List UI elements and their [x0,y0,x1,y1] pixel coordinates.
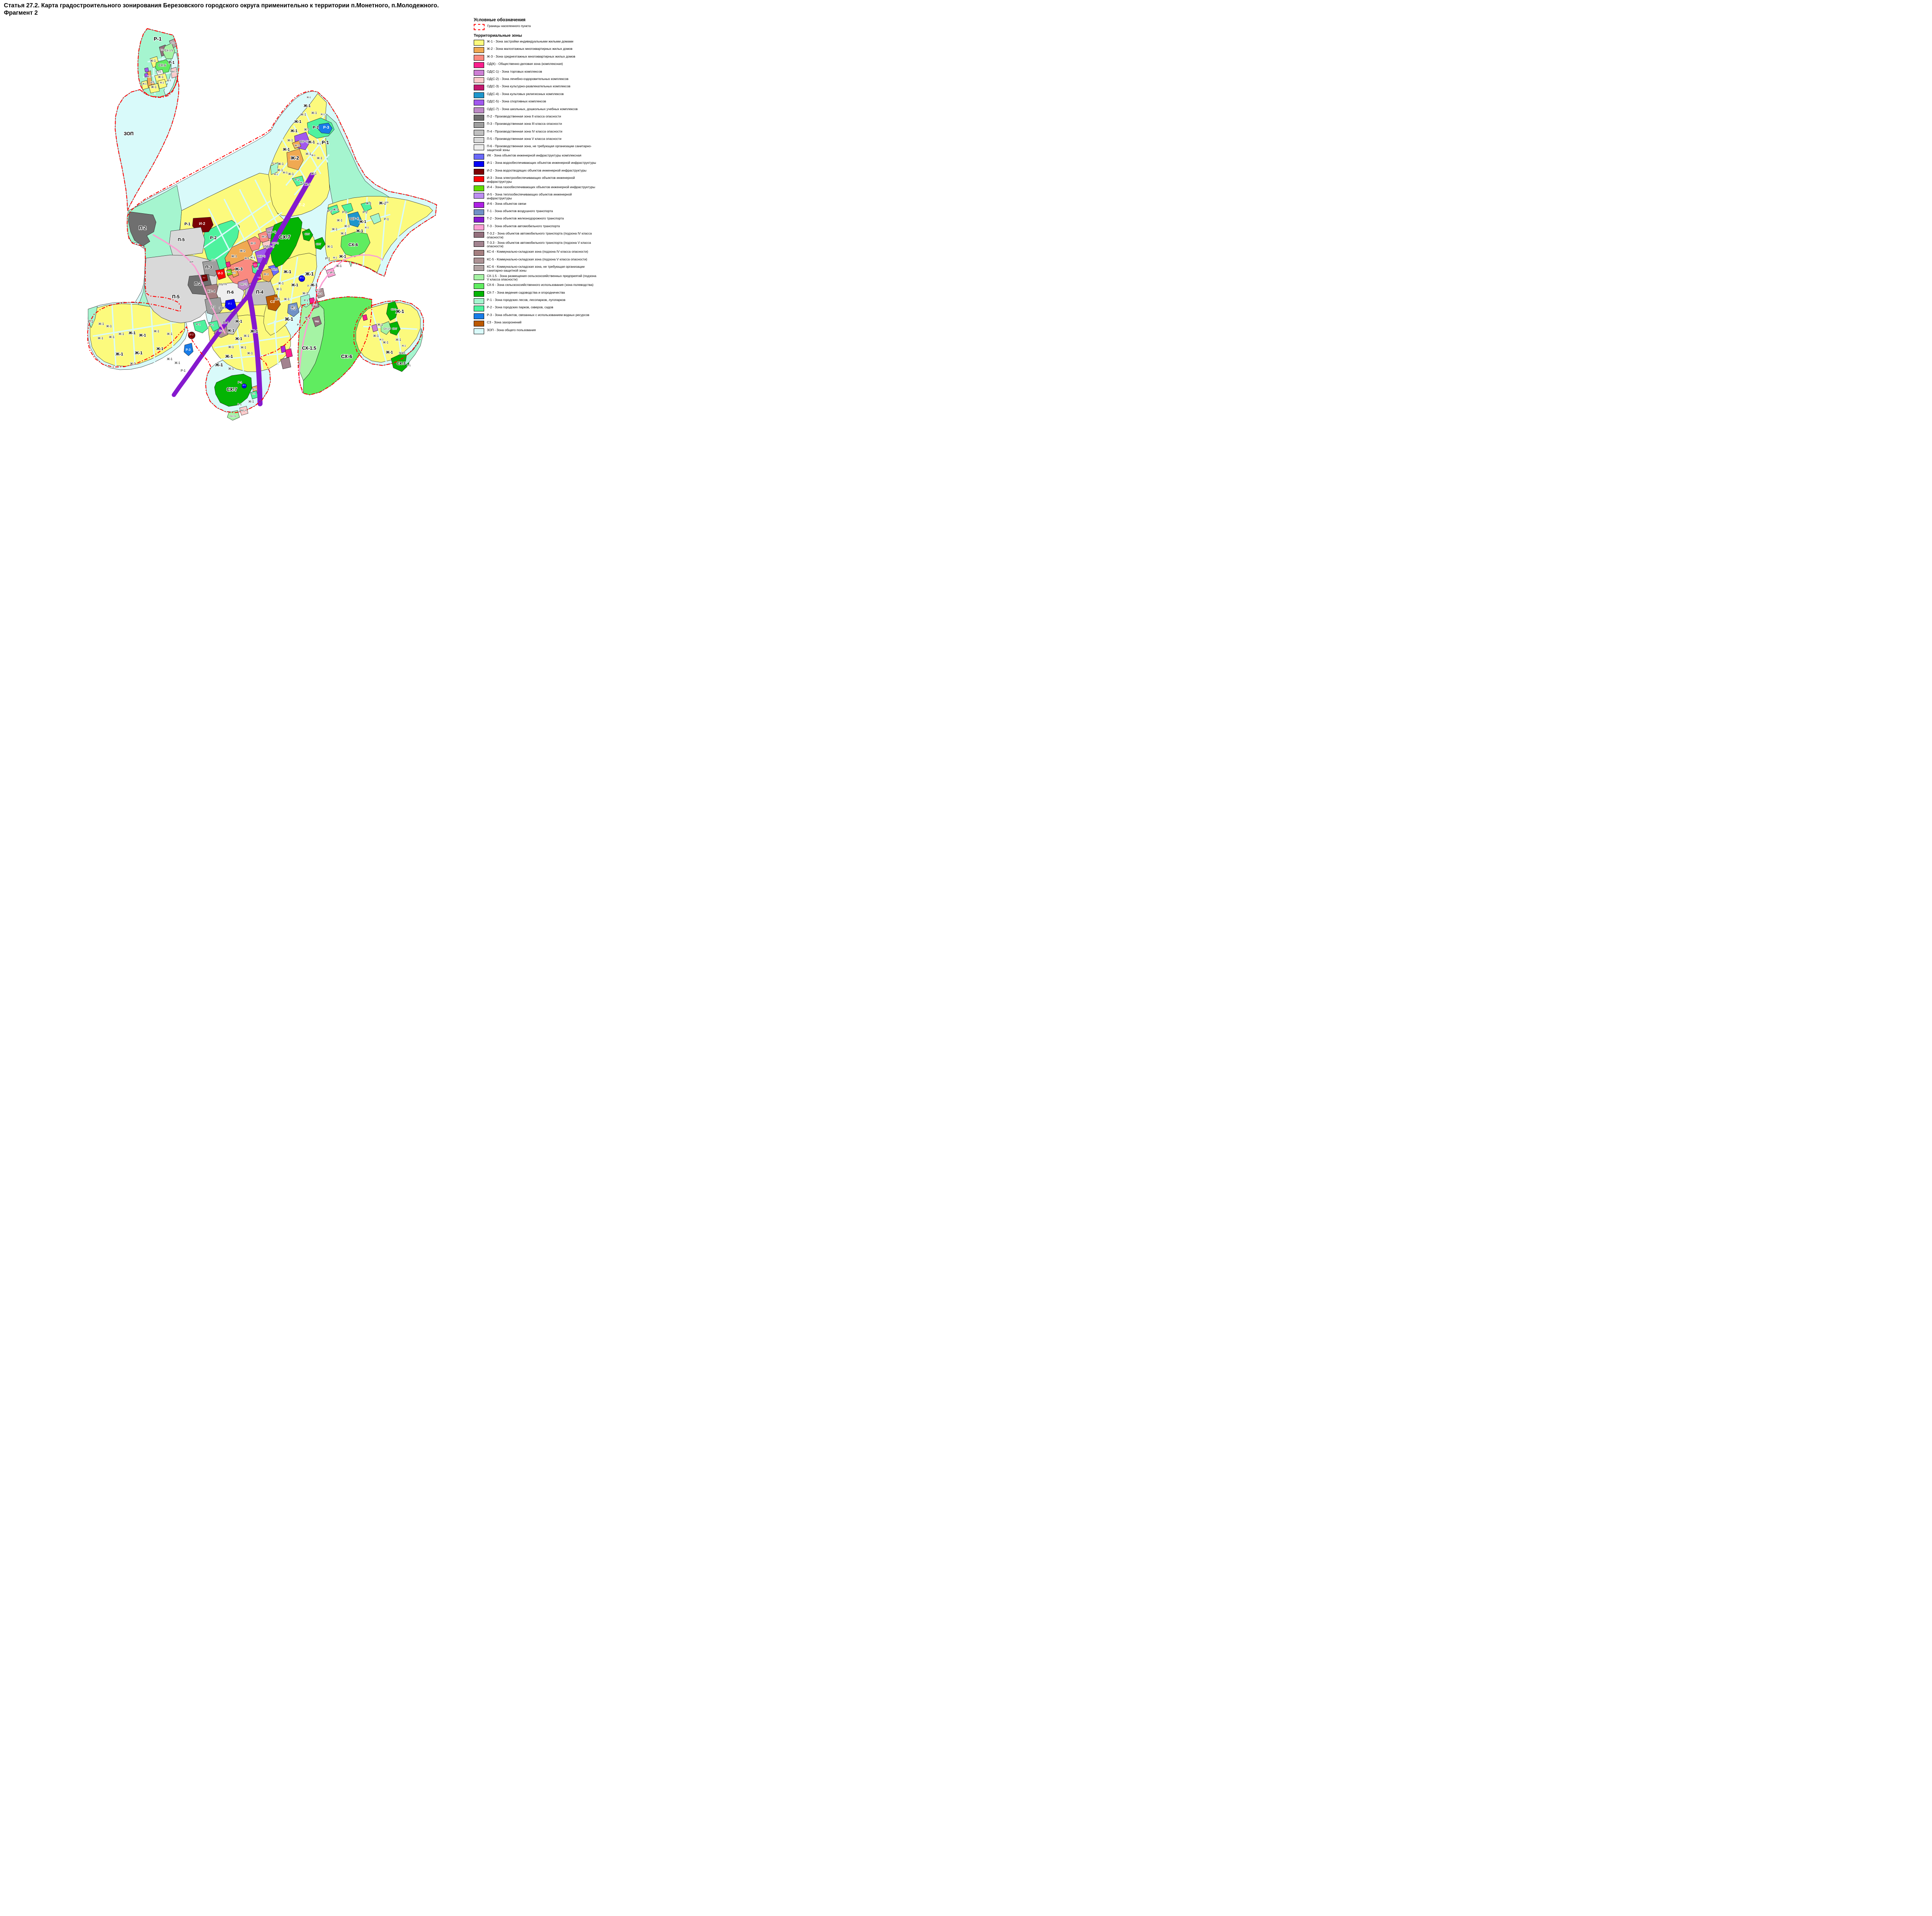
map-label-Р-2: Р-2 [255,268,259,270]
map-label-Р-1: Р-1 [181,369,186,372]
map-label-Ж-2: Ж-2 [253,388,256,391]
map-label-Р-2: Р-2 [328,209,333,213]
legend-label-П-6: П-6 - Производственная зона, не требующа… [487,144,597,152]
map-label-ОД(К): ОД(К) [257,276,262,278]
map-label-Ж-1: Ж-1 [284,298,290,301]
legend-item-П-4: П-4 - Производственная зона IV класса оп… [474,129,597,136]
map-label-Ж-1: Ж-1 [106,325,112,328]
legend-item-И-6: И-6 - Зона объектов связи [474,202,597,208]
map-label-Р-1: Р-1 [331,272,335,274]
map-label-Ж-1: Ж-1 [306,152,311,156]
map-label-СХ-6: СХ-6 [158,63,166,67]
legend-label-П-3: П-3 - Производственная зона III класса о… [487,122,562,126]
map-label-Ж-1: Ж-1 [215,363,223,367]
map-label-Ж-1: Ж-1 [290,129,298,133]
legend-swatch-Р-2 [474,306,484,311]
map-label-Ж-1: Ж-1 [339,255,346,259]
legend-label-КС-5: КС-5 - Коммунально-складская зона (подзо… [487,257,587,262]
legend-item-И-3: И-3 - Зона электрообеспечивающих объекто… [474,176,597,184]
map-label-Ж-1: Ж-1 [235,337,242,341]
legend-swatch-СЗ [474,321,484,326]
map-label-И-1: И-1 [228,303,232,305]
parcel-П-5 [169,227,205,257]
map-label-Ж-1: Ж-1 [378,323,383,326]
map-label-Ж-2: Ж-2 [150,82,154,84]
map-label-Ж-1: Ж-1 [288,172,294,176]
map-label-Ж-1: Ж-1 [359,220,366,224]
legend-swatch-ОД(С-1) [474,70,484,76]
legend-label-И-4: И-4 - Зона газообеспечивающих объектов и… [487,185,595,189]
map-label-Ж-1: Ж-1 [99,322,104,326]
map-label-СХ-1.5: СХ-1.5 [230,415,236,418]
legend-swatch-Т-3 [474,224,484,230]
map-label-Р-2: Р-2 [196,323,201,326]
legend-item-КС-6: КС-6 - Коммунально-складская зона, не тр… [474,265,597,272]
legend-label-Р-3: Р-3 - Зона объектов, связанных с использ… [487,313,589,317]
map-label-Ж-3: Ж-3 [235,267,243,272]
legend-label-Р-2: Р-2 - Зона городских парков, скверов, са… [487,305,553,309]
map-label-П-2: П-2 [194,282,201,286]
map-label-Ж-1: Ж-1 [396,338,401,342]
map-label-Ж-1: Ж-1 [231,255,237,258]
map-label-Ж-1: Ж-1 [337,219,343,222]
map-label-Р-2: Р-2 [342,211,347,214]
map-label-Ж-1: Ж-1 [333,257,338,259]
map-label-СХ-7: СХ-7 [316,243,321,246]
legend-swatch-П-5 [474,137,484,143]
legend-label-И-2: И-2 - Зона водоотводящих объектов инжене… [487,168,587,173]
map-label-Р-1: Р-1 [304,299,308,302]
legend-label-ОД(С-3): ОД(С-3) - Зона культурно-развлекательных… [487,84,570,88]
legend-label-ОД(С-1): ОД(С-1) - Зона торговых комплексов [487,70,542,74]
map-label-Ж-1: Ж-1 [227,329,235,333]
map-label-Ж-1: Ж-1 [303,104,311,108]
legend-label-ОД(С-5): ОД(С-5) - Зона спортивных комплексов [487,99,546,104]
legend-swatch-И-5 [474,193,484,199]
legend-label-СХ-1.5: СХ-1.5 - Зона размещения сельскохозяйств… [487,274,597,282]
map-label-П-2: П-2 [139,225,146,231]
legend-label-Ж-3: Ж-3 - Зона среднеэтажных многоквартирных… [487,54,575,59]
legend-item-Р-1: Р-1 - Зона городских лесов, лесопарков, … [474,298,597,304]
map-label-Ж-3: Ж-3 [251,242,256,245]
legend-swatch-И-1 [474,161,484,167]
map-label-Т-3.3: Т-3.3 [313,304,317,306]
parcel-ОД(С-5) [145,68,149,72]
map-label-Р-2: Р-2 [297,324,301,326]
map-label-СХ-7: СХ-7 [227,387,237,392]
map-label-Ж-1: Ж-1 [282,148,290,152]
legend-items: Ж-1 - Зона застройки индивидуальными жил… [474,39,597,334]
map-label-КС-5: КС-5 [212,259,216,262]
legend-item-СХ-1.5: СХ-1.5 - Зона размещения сельскохозяйств… [474,274,597,282]
map-label-СЗ: СЗ [270,300,275,304]
map-label-Ж-1: Ж-1 [248,400,254,403]
map-label-П-4: П-4 [223,321,228,325]
legend-header: Условные обозначения [474,18,597,22]
parcel-ОД(К) [285,349,293,358]
legend-swatch-Ж-3 [474,55,484,61]
map-label-Ж-2: Ж-2 [290,155,299,161]
legend-item-СХ-6: СХ-6 - Зона сельскохозяйственного исполь… [474,283,597,289]
legend-item-ЗОП: ЗОП - Зона общего пользования [474,328,597,334]
map-label-Р-2: Р-2 [252,393,255,395]
map-label-Ж-1: Ж-1 [284,316,293,322]
legend-label-Т-3: Т-3 - Зона объектов автомобильного транс… [487,224,560,228]
legend-item-Т-3: Т-3 - Зона объектов автомобильного транс… [474,224,597,230]
map-label-Ж-1: Ж-1 [235,320,242,324]
map-label-СХ-6: СХ-6 [349,243,358,247]
legend-swatch-Т-3.3 [474,241,484,247]
legend-item-КС-4: КС-4 - Коммунально-складская зона (подзо… [474,250,597,256]
map-label-Ж-1: Ж-1 [332,228,338,231]
legend-swatch-ОД(С-2) [474,77,484,83]
map-label-Ж-1: Ж-1 [303,292,308,295]
legend-swatch-ОД(С-7) [474,107,484,113]
legend-item-П-5: П-5 - Производственная зона V класса опа… [474,137,597,143]
map-label-Т-2: Т-2 [299,203,305,207]
map-label-СХ-7: СХ-7 [279,234,290,240]
legend-label-Ж-2: Ж-2 - Зона малоэтажных многоквартирных ж… [487,47,572,51]
map-label-И-1: И-1 [300,277,304,279]
map-label-СХ-7: СХ-7 [392,328,397,330]
map-label-Ж-1: Ж-1 [150,59,156,63]
map-label-Р-1: Р-1 [238,403,242,406]
map-label-Ж-1: Ж-1 [344,224,350,228]
legend-swatch-ОД(С-4) [474,92,484,98]
map-label-П-5: П-5 [178,238,185,242]
legend-label-И-6: И-6 - Зона объектов связи [487,202,526,206]
legend-swatch-Р-1 [474,298,484,304]
map-label-Р-1: Р-1 [238,381,242,384]
map-label-СХ-7: СХ-7 [391,309,396,311]
legend-label-ОД(С-4): ОД(С-4) - Зона культовых религиозных ком… [487,92,564,96]
legend-item-ОД(С-4): ОД(С-4) - Зона культовых религиозных ком… [474,92,597,98]
legend-swatch-КС-5 [474,258,484,264]
map-label-КС-5: КС-5 [316,289,320,291]
map-label-Ж-1: Ж-1 [402,345,406,347]
map-label-Р-2: Р-2 [295,178,300,182]
legend-item-И-5: И-5 - Зона теплообеспечивающих объектов … [474,192,597,200]
map-label-Ж-1: Ж-1 [278,282,284,285]
map-label-Ж-1: Ж-1 [167,80,172,82]
legend-swatch-Т-3.2 [474,232,484,238]
legend-item-ОД(С-2): ОД(С-2) - Зона лечебно-оздоровительных к… [474,77,597,83]
legend-swatch-П-2 [474,115,484,121]
map-label-Р-2: Р-2 [363,211,368,214]
map-label-Ж-1: Ж-1 [327,245,333,248]
map-label-П-3: П-3 [211,305,216,309]
map-label-Ж-1: Ж-1 [304,128,310,131]
map-label-КС-5: КС-5 [318,293,322,295]
map-label-И-1: И-1 [243,384,246,387]
legend-swatch-ИК [474,154,484,160]
map-label-Ж-1: Ж-1 [278,162,284,166]
legend-label-Т-3.3: Т-3.3 - Зона объектов автомобильного тра… [487,241,597,248]
map-label-И-2: И-2 [190,334,194,336]
legend-label-СЗ: СЗ - Зона захоронений [487,320,522,325]
legend-swatch-КС-4 [474,250,484,256]
legend-label-П-4: П-4 - Производственная зона IV класса оп… [487,129,562,134]
map-label-Ж-1: Ж-1 [247,352,253,355]
map-label-КС-4: КС-4 [207,289,215,293]
map-label-Ж-1: Ж-1 [225,354,233,359]
map-label-Р-2: Р-2 [210,236,216,240]
map-label-Ж-1: Ж-1 [305,183,311,186]
map-label-Ж-1: Ж-1 [130,362,136,366]
map-label-Ж-1: Ж-1 [283,172,288,174]
map-label-Ж-1: Ж-1 [228,367,234,371]
legend-label-П-2: П-2 - Производственная зона II класса оп… [487,114,561,119]
map-label-Ж-3: Ж-3 [262,236,267,238]
map-label-ОД(С-5): ОД(С-5) [299,141,308,143]
map-label-Ж-1: Ж-1 [276,287,282,291]
map-label-И-3: И-3 [218,272,223,275]
map-label-Ж-1: Ж-1 [158,75,164,79]
map-label-Р-3: Р-3 [186,348,191,352]
map-label-Ж-1: Ж-1 [156,347,163,351]
map-label-Ж-1: Ж-1 [294,120,301,124]
legend-label-П-5: П-5 - Производственная зона V класса опа… [487,137,561,141]
boundary-label: Границы населенного пункта [487,24,531,28]
map-label-ОД(С-7): ОД(С-7) [240,283,247,286]
map-label-Ж-1: Ж-1 [311,172,317,175]
map-label-Ж-1: Ж-1 [291,306,297,309]
map-label-Ж-1: Ж-1 [308,140,315,145]
map-label-П-5: П-5 [274,269,277,271]
map-label-Ж-2: Ж-2 [295,145,300,147]
map-label-ОД(С-7): ОД(С-7) [266,231,276,234]
map-label-Ж-1: Ж-1 [317,143,321,145]
map-label-Ж-2: Ж-2 [264,273,269,276]
legend-item-Т-3.2: Т-3.2 - Зона объектов автомобильного тра… [474,231,597,239]
map-label-СХ-7: СХ-7 [397,362,406,366]
legend-item-ОД(С-1): ОД(С-1) - Зона торговых комплексов [474,70,597,76]
legend-item-И-4: И-4 - Зона газообеспечивающих объектов и… [474,185,597,191]
map-label-Ж-1: Ж-1 [143,83,147,85]
map-label-Ж-1: Ж-1 [365,227,369,229]
legend-label-ОД(К): ОД(К) - Общественно-деловая зона (компле… [487,62,563,66]
legend-item-Т-2: Т-2 - Зона объектов железнодорожного тра… [474,216,597,223]
legend-swatch-СХ-7 [474,291,484,297]
legend-swatch-Р-3 [474,313,484,319]
legend-swatch-П-4 [474,130,484,136]
map-label-Ж-1: Ж-1 [167,332,173,336]
legend-item-ОД(С-3): ОД(С-3) - Зона культурно-развлекательных… [474,84,597,90]
legend-label-Р-1: Р-1 - Зона городских лесов, лесопарков, … [487,298,565,302]
map-label-ОД(С-2): ОД(С-2) [170,71,178,73]
legend-label-ИК: ИК - Зона объектов инженерной инфраструк… [487,153,582,158]
legend-label-Т-3.2: Т-3.2 - Зона объектов автомобильного тра… [487,231,597,239]
map-label-Т-3.2: Т-3.2 [160,49,165,51]
legend-swatch-СХ-6 [474,283,484,289]
legend-swatch-И-2 [474,169,484,175]
map-label-Т-3.2: Т-3.2 [315,320,319,322]
map-label-СХ-1.5: СХ-1.5 [384,328,391,330]
legend-item-ОД(С-5): ОД(С-5) - Зона спортивных комплексов [474,99,597,105]
map-label-Р-1: Р-1 [322,140,329,145]
map-label-Ж-1: Ж-1 [98,337,104,340]
map-label-СХ-1.5: СХ-1.5 [302,345,316,351]
map-label-П-6: П-6 [227,290,234,295]
map-label-Ж-1: Ж-1 [383,341,389,344]
map-label-ОД(К): ОД(К) [253,264,257,266]
map-label-Ж-1: Ж-1 [317,156,323,160]
legend-item-СХ-7: СХ-7 - Зона ведения садоводства и огород… [474,291,597,297]
legend-swatch-ЗОП [474,328,484,334]
map-label-Ж-1: Ж-1 [250,257,255,259]
legend-item-П-2: П-2 - Производственная зона II класса оп… [474,114,597,121]
parcel-Р-2 [193,320,208,333]
map-label-Ж-1: Ж-1 [115,352,123,357]
legend-item-Р-2: Р-2 - Зона городских парков, скверов, са… [474,305,597,311]
map-label-Ж-1: Ж-1 [167,357,173,361]
map-label-И-4: И-4 [227,271,230,274]
legend-label-СХ-7: СХ-7 - Зона ведения садоводства и огород… [487,291,565,295]
map-label-Ж-1: Ж-1 [356,229,363,233]
legend: Условные обозначения Границы населенного… [474,18,597,335]
legend-label-Ж-1: Ж-1 - Зона застройки индивидуальными жил… [487,39,573,44]
legend-item-Т-3.3: Т-3.3 - Зона объектов автомобильного тра… [474,241,597,248]
map-label-Ж-1: Ж-1 [336,264,342,268]
legend-swatch-И-6 [474,202,484,208]
legend-swatch-КС-6 [474,265,484,271]
map-label-ЗОП: ЗОП [384,202,389,204]
legend-item-Т-1: Т-1 - Зона объектов воздушного транспорт… [474,209,597,215]
map-label-ЗОП: ЗОП [189,261,194,264]
legend-item-Ж-2: Ж-2 - Зона малоэтажных многоквартирных ж… [474,47,597,53]
legend-item-П-6: П-6 - Производственная зона, не требующа… [474,144,597,152]
map-label-Ж-1: Ж-1 [305,316,311,320]
legend-boundary-item: Границы населенного пункта [474,24,597,30]
map-label-Р-1: Р-1 [168,61,175,65]
map-label-ОД(С-5): ОД(С-5) [257,255,265,258]
page: Статья 27.2. Карта градостроительного зо… [0,0,597,422]
legend-swatch-СХ-1.5 [474,274,484,280]
map-label-П-6: П-6 [223,284,227,286]
map-label-Ж-1: Ж-1 [119,332,124,336]
map-label-ЗОП: ЗОП [124,131,133,136]
map-label-Ж-1: Ж-1 [274,173,279,176]
map-label-Ж-1: Ж-1 [341,232,347,235]
map-label-ОД(С-2): ОД(С-2) [264,245,274,248]
legend-item-ОД(С-7): ОД(С-7) - Зона школьных, дошкольных учеб… [474,107,597,113]
map-label-Ж-1: Ж-1 [287,139,293,142]
map-label-Ж-1: Ж-1 [301,113,306,116]
map-label-Ж-1: Ж-1 [395,309,404,314]
map-label-ЗОП: ЗОП [399,352,405,355]
map-label-Ж-1: Ж-1 [386,350,393,355]
legend-swatch-Т-2 [474,217,484,223]
map-label-Ж-1: Ж-1 [175,361,180,365]
legend-label-И-3: И-3 - Зона электрообеспечивающих объекто… [487,176,597,184]
map-label-И-2: И-2 [199,222,206,226]
map-label-П-5: П-5 [218,284,223,286]
map-label-СХ-1.5: СХ-1.5 [165,49,173,52]
boundary-symbol [474,24,485,30]
map-label-Ж-1: Ж-1 [134,351,143,355]
map-label-Р-1: Р-1 [272,163,276,165]
legend-swatch-П-6 [474,145,484,150]
legend-label-КС-4: КС-4 - Коммунально-складская зона (подзо… [487,250,588,254]
legend-label-КС-6: КС-6 - Коммунально-складская зона, не тр… [487,265,597,272]
legend-label-ОД(С-2): ОД(С-2) - Зона лечебно-оздоровительных к… [487,77,568,81]
legend-swatch-ОД(К) [474,62,484,68]
legend-zones-header: Территориальные зоны [474,33,597,38]
map-label-СХ-6: СХ-6 [341,354,352,359]
map-label-Р-1: Р-1 [407,365,411,367]
legend-label-Т-1: Т-1 - Зона объектов воздушного транспорт… [487,209,553,213]
legend-item-И-2: И-2 - Зона водоотводящих объектов инжене… [474,168,597,175]
map-label-Р-1: Р-1 [184,222,190,226]
map-label-Ж-2: Ж-2 [147,76,151,78]
map-label-Ж-1: Ж-1 [311,111,317,115]
map-label-Ж-1: Ж-1 [228,345,234,349]
map-label-Р-1: Р-1 [154,36,162,42]
map-label-Ж-2: Ж-2 [232,272,235,274]
legend-label-ЗОП: ЗОП - Зона общего пользования [487,328,536,332]
map-label-П-6: П-6 [158,71,161,73]
map-label-Ж-1: Ж-1 [305,271,314,277]
map-label-ОД(С-2): ОД(С-2) [240,410,247,412]
map-label-Ж-1: Ж-1 [244,334,250,338]
map-label-Ж-1: Ж-1 [311,155,316,157]
map-label-Р-1: Р-1 [384,218,389,221]
map-label-Р-3: Р-3 [323,126,329,130]
legend-item-Ж-1: Ж-1 - Зона застройки индивидуальными жил… [474,39,597,46]
legend-label-И-5: И-5 - Зона теплообеспечивающих объектов … [487,192,597,200]
map-label-Ж-1: Ж-1 [241,346,247,349]
map-label-Ж-1: Ж-1 [307,97,311,99]
map-label-Ж-1: Ж-1 [373,334,379,338]
map-label-КС-6: КС-6 [171,42,175,44]
map-label-Ж-1: Ж-1 [154,330,160,333]
map-label-Р-2: Р-2 [210,324,214,326]
map-label-ОД(С-7): ОД(С-7) [272,242,279,245]
legend-swatch-ОД(С-5) [474,100,484,105]
legend-item-ОД(К): ОД(К) - Общественно-деловая зона (компле… [474,62,597,68]
map-label-Ж-1: Ж-1 [366,202,372,205]
parcel-Т-3.3 [281,357,291,369]
map-label-ОД(С-4): ОД(С-4) [349,218,359,220]
legend-item-Р-3: Р-3 - Зона объектов, связанных с использ… [474,313,597,319]
map-label-Р-1: Р-1 [322,269,326,271]
legend-swatch-Ж-1 [474,40,484,46]
map-label-Р-2: Р-2 [313,126,319,130]
map-label-Ж-1: Ж-1 [245,257,250,260]
map-label-Ж-1: Ж-1 [275,298,281,301]
map-label-Ж-1: Ж-1 [277,168,283,172]
map-label-Ж-1: Ж-1 [300,182,305,184]
map-label-П-4: П-4 [256,289,264,295]
map-label-Р-1: Р-1 [88,320,93,323]
legend-label-СХ-6: СХ-6 - Зона сельскохозяйственного исполь… [487,283,594,287]
map-label-Ж-1: Ж-1 [250,329,258,334]
legend-swatch-Ж-2 [474,47,484,53]
map-label-КС-5: КС-5 [219,330,223,332]
map-label-Р-1: Р-1 [325,257,330,260]
map-label-П-3: П-3 [205,265,212,270]
map-label-СХ-7: СХ-7 [304,233,310,236]
legend-item-СЗ: СЗ - Зона захоронений [474,320,597,326]
map-label-Ж-1: Ж-1 [310,283,318,287]
legend-label-ОД(С-7): ОД(С-7) - Зона школьных, дошкольных учеб… [487,107,578,111]
map-label-Ж-1: Ж-1 [160,82,165,84]
map-label-Ж-1: Ж-1 [139,333,146,338]
legend-label-И-1: И-1 - Зона водообеспечивающих объектов и… [487,161,596,165]
legend-label-Т-2: Т-2 - Зона объектов железнодорожного тра… [487,216,564,221]
map-label-Т-3: Т-3 [328,272,331,274]
map-label-Ж-2: Ж-2 [240,249,246,253]
